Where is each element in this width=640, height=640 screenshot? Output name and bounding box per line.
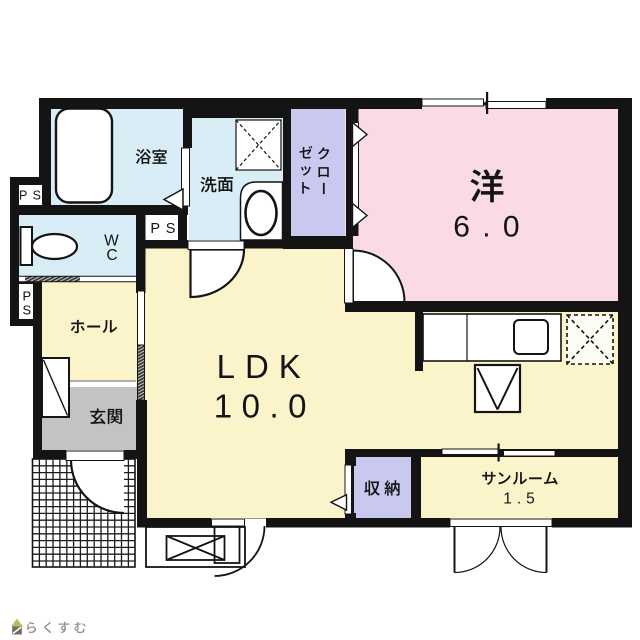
svg-text:C: C (106, 247, 117, 264)
svg-text:1.5: 1.5 (503, 491, 540, 508)
svg-text:P S: P S (19, 189, 42, 203)
svg-text:P: P (22, 289, 31, 304)
svg-text:LDK: LDK (217, 348, 311, 385)
svg-text:S: S (22, 303, 31, 318)
svg-text:6.0: 6.0 (453, 210, 532, 243)
svg-text:10.0: 10.0 (214, 387, 316, 424)
svg-text:P S: P S (150, 221, 176, 237)
